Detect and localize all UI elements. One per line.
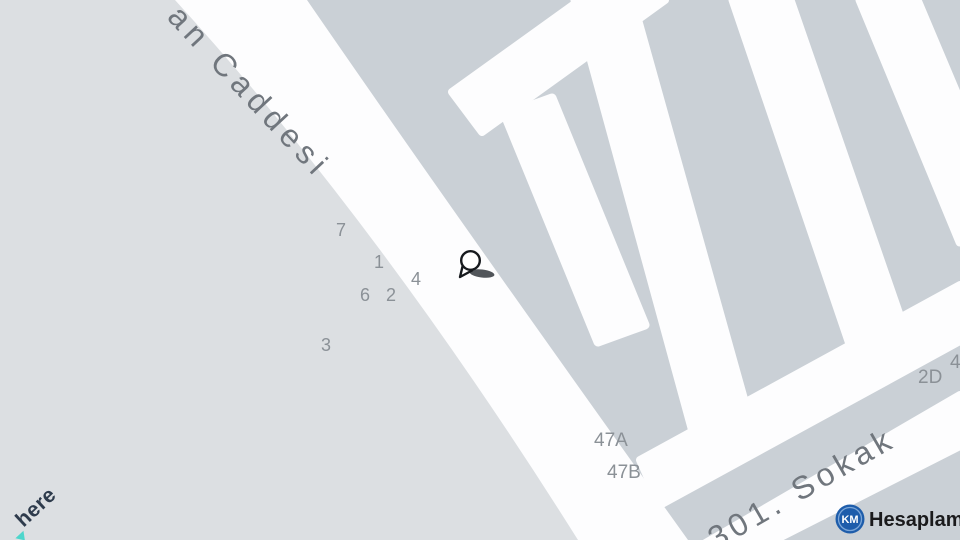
house-number-label: 47B [607,462,641,483]
pin-head [461,251,480,270]
map-tile[interactable]: an Caddesi 301. Sokak 7 1 4 6 2 3 47A 47… [0,0,960,540]
house-number-label: 7 [336,220,346,240]
house-number-label: 4 [950,352,960,373]
house-number-label: 4 [411,269,421,289]
km-hesaplama-logo[interactable]: KM Hesaplama [836,505,960,534]
house-number-label: 6 [360,285,370,305]
house-number-label: 3 [321,335,331,355]
km-brand-name: Hesaplama [869,509,960,531]
house-number-label: 1 [374,252,384,272]
map-canvas[interactable]: an Caddesi 301. Sokak 7 1 4 6 2 3 47A 47… [0,0,960,540]
house-number-label: 2D [918,367,942,388]
km-badge-label: KM [841,514,858,526]
house-number-label: 47A [594,430,628,451]
house-number-label: 2 [386,285,396,305]
